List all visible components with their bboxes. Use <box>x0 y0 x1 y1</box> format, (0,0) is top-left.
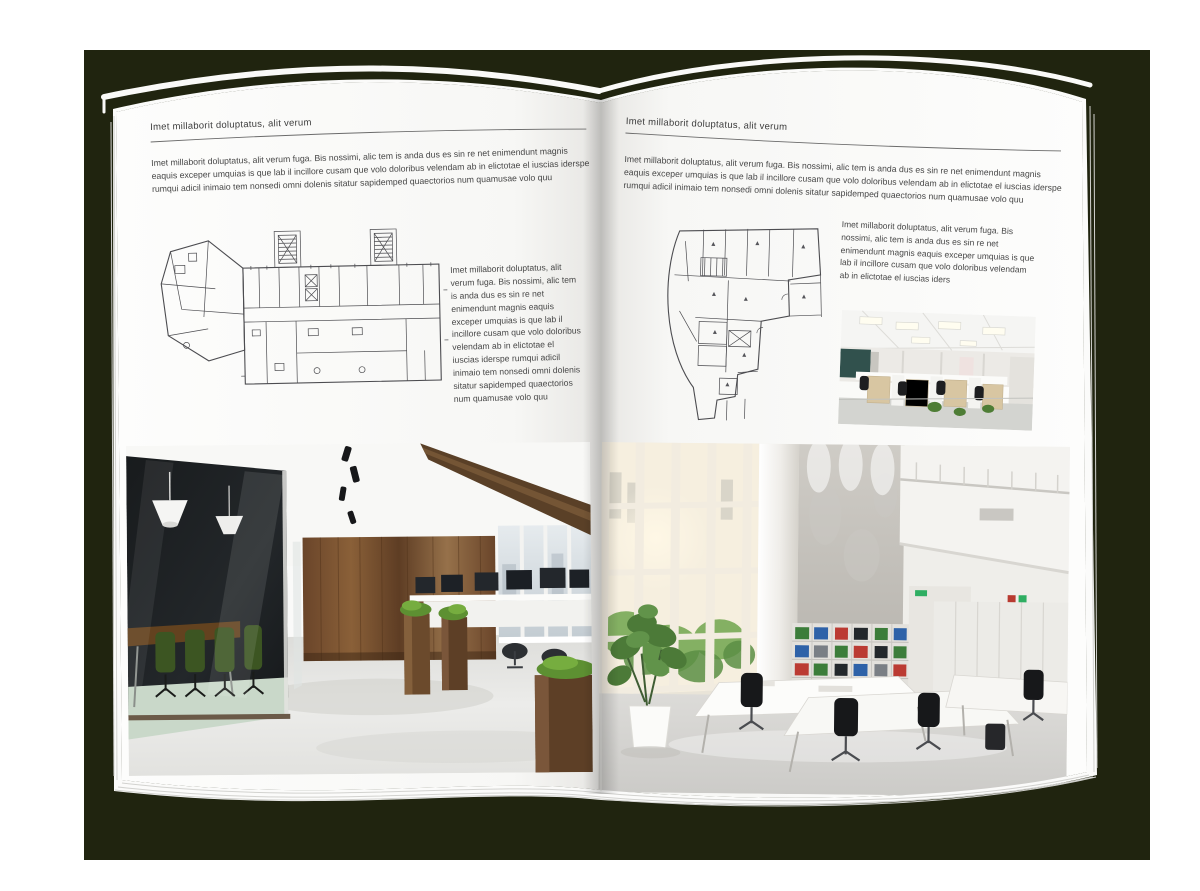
waste-bin <box>985 724 1005 750</box>
magazine-spread-mockup: Imet millaborit doluptatus, alit verum I… <box>0 0 1200 891</box>
right-side-text-block: Imet millaborit doluptatus, alit verum f… <box>839 218 1039 290</box>
left-page-text-block: Imet millaborit doluptatus, alit verum I… <box>150 109 596 197</box>
left-office-photo <box>126 442 593 776</box>
concrete-wall <box>797 442 905 646</box>
right-office-photo <box>598 442 1070 797</box>
right-page-text-block: Imet millaborit doluptatus, alit verum I… <box>623 116 1072 209</box>
glass-meeting-room <box>126 455 290 740</box>
right-small-office-photo <box>838 310 1036 431</box>
left-side-text: Imet millaborit doluptatus, alit verum f… <box>450 260 584 405</box>
left-side-text-block: Imet millaborit doluptatus, alit verum f… <box>450 260 584 405</box>
left-floor-plan <box>154 220 450 412</box>
right-floor-plan <box>640 220 844 429</box>
right-side-text: Imet millaborit doluptatus, alit verum f… <box>839 218 1039 290</box>
